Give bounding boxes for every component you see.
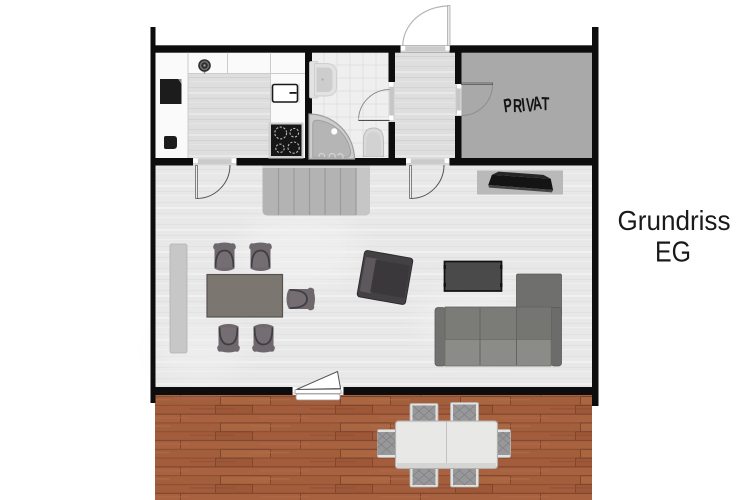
svg-text:Grundriss: Grundriss [618,205,731,236]
svg-text:EG: EG [655,236,691,268]
svg-text:PRIVAT: PRIVAT [502,93,552,119]
